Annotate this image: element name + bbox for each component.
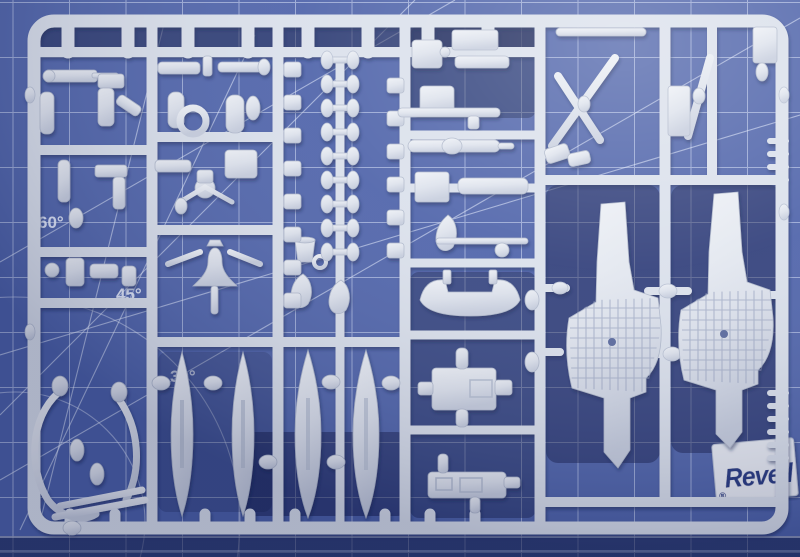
sprue-photo: 60° 45° 30° Revell ®	[0, 0, 800, 557]
photo-of-model-sprue-on-cutting-mat: 60° 45° 30° Revell ®	[0, 0, 800, 557]
mat-bottom-edge	[0, 536, 800, 557]
angle-label-60: 60°	[38, 213, 64, 232]
